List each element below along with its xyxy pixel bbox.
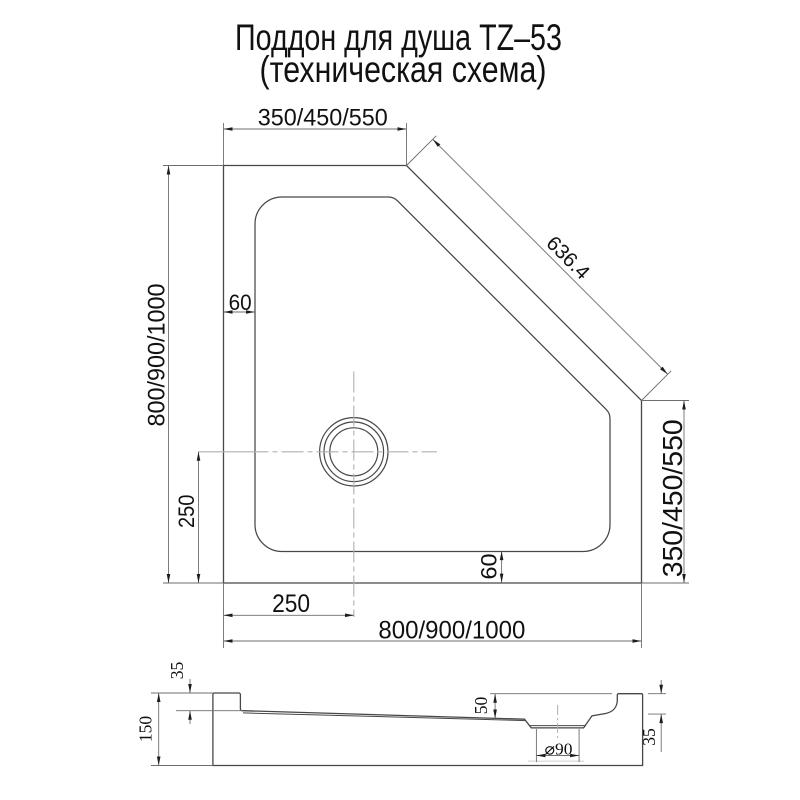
svg-text:(техническая схема): (техническая схема) bbox=[260, 49, 547, 91]
svg-text:35: 35 bbox=[167, 662, 187, 680]
svg-text:800/900/1000: 800/900/1000 bbox=[144, 284, 171, 427]
svg-text:800/900/1000: 800/900/1000 bbox=[378, 617, 525, 645]
svg-text:⌀90: ⌀90 bbox=[545, 740, 573, 759]
svg-text:35: 35 bbox=[639, 728, 659, 746]
svg-text:50: 50 bbox=[471, 697, 491, 715]
svg-text:150: 150 bbox=[136, 716, 156, 743]
svg-text:60: 60 bbox=[476, 554, 501, 580]
svg-text:250: 250 bbox=[174, 495, 199, 529]
svg-text:636.4: 636.4 bbox=[542, 232, 595, 285]
svg-text:350/450/550: 350/450/550 bbox=[258, 105, 388, 132]
svg-text:350/450/550: 350/450/550 bbox=[657, 419, 688, 577]
svg-text:60: 60 bbox=[229, 290, 252, 315]
svg-text:250: 250 bbox=[272, 590, 310, 618]
